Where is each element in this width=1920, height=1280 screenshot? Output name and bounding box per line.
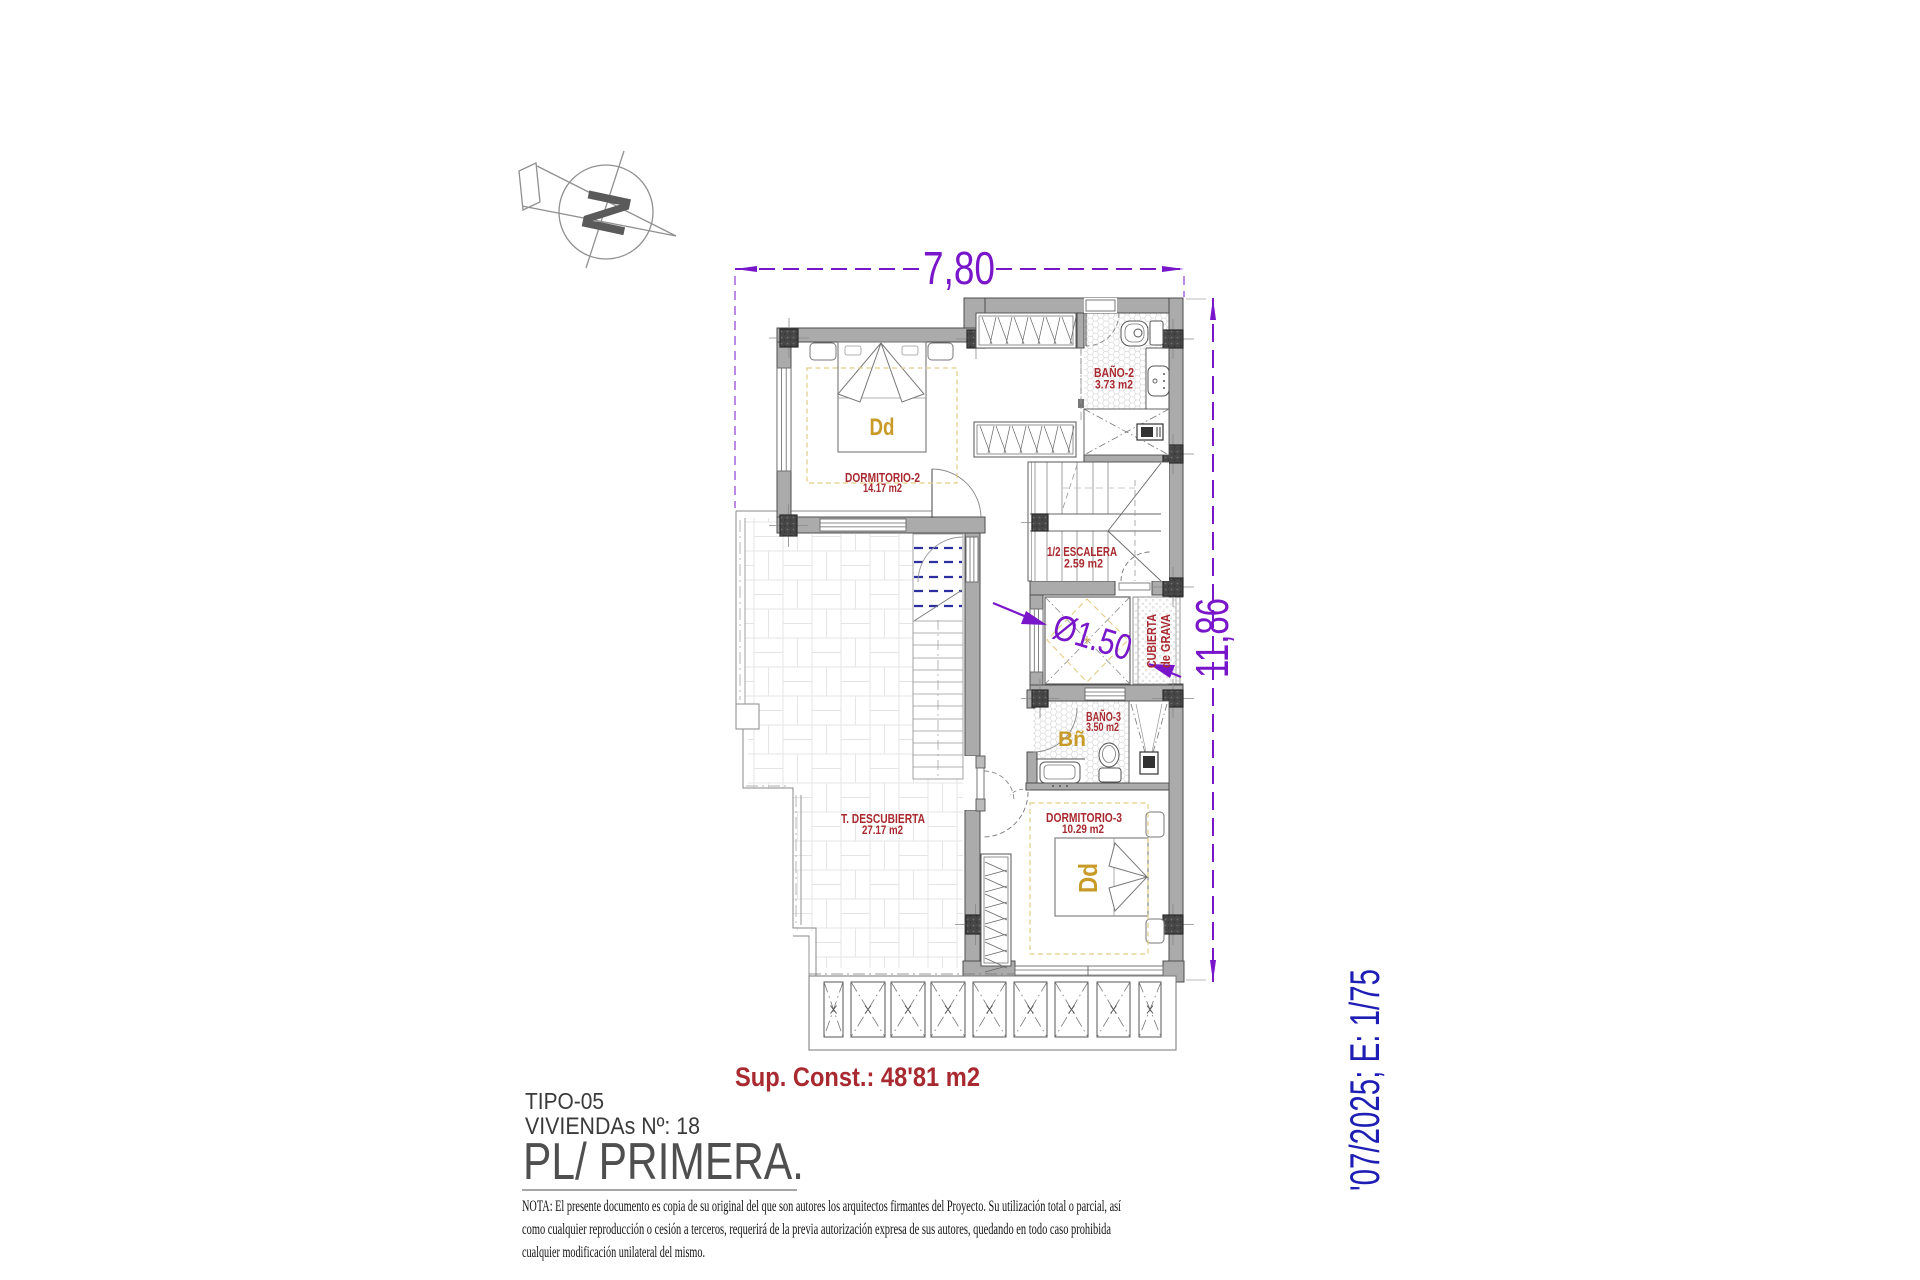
svg-text:TIPO-05: TIPO-05 — [525, 1088, 604, 1114]
svg-text:de GRAVA: de GRAVA — [1159, 614, 1173, 668]
svg-text:NOTA: El presente documento es: NOTA: El presente documento es copia de … — [522, 1198, 1121, 1215]
svg-text:como cualquier reproducción o: como cualquier reproducción o cesión a t… — [522, 1221, 1111, 1238]
svg-text:'07/2025; E: 1/75: '07/2025; E: 1/75 — [1341, 969, 1388, 1191]
svg-text:Dd: Dd — [1073, 863, 1103, 893]
svg-text:Sup. Const.: 48'81 m2: Sup. Const.: 48'81 m2 — [735, 1062, 980, 1092]
svg-text:27.17 m2: 27.17 m2 — [862, 823, 903, 837]
svg-text:2.59 m2: 2.59 m2 — [1064, 557, 1103, 571]
svg-text:14.17 m2: 14.17 m2 — [863, 481, 902, 495]
svg-text:Dd: Dd — [870, 414, 895, 441]
svg-text:PL/ PRIMERA.: PL/ PRIMERA. — [523, 1133, 804, 1191]
svg-text:Bñ: Bñ — [1058, 728, 1086, 751]
svg-text:3.73 m2: 3.73 m2 — [1095, 378, 1133, 392]
svg-text:3.50 m2: 3.50 m2 — [1086, 720, 1119, 734]
svg-text:10.29 m2: 10.29 m2 — [1062, 822, 1104, 836]
svg-text:11,86: 11,86 — [1186, 598, 1238, 678]
svg-text:CUBIERTA: CUBIERTA — [1145, 614, 1159, 668]
svg-text:7,80: 7,80 — [923, 242, 995, 294]
svg-text:cualquier modificación unilate: cualquier modificación unilateral del mi… — [522, 1244, 705, 1261]
